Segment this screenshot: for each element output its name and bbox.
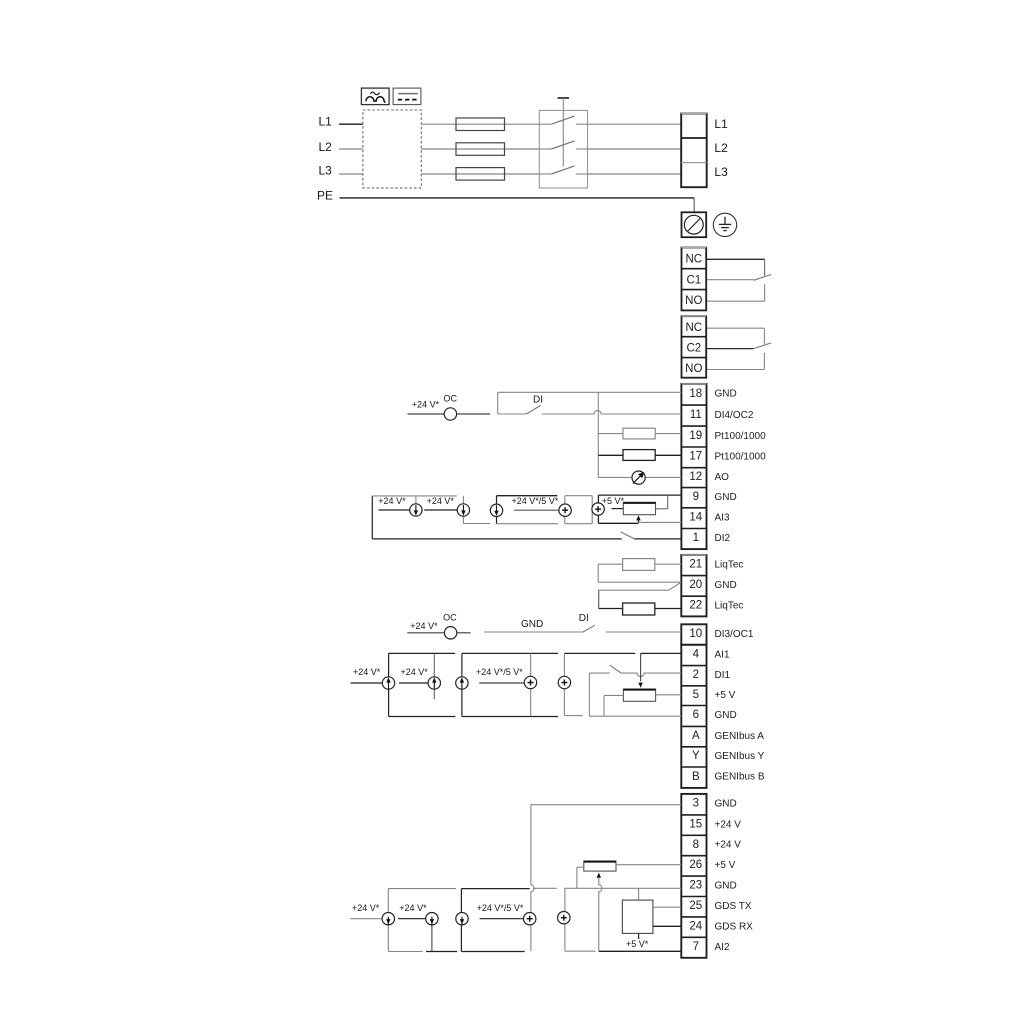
svg-text:8: 8	[693, 839, 699, 851]
svg-text:9: 9	[693, 491, 699, 503]
svg-text:+24 V*: +24 V*	[378, 496, 406, 506]
svg-text:1: 1	[693, 532, 699, 544]
svg-text:19: 19	[689, 430, 702, 442]
svg-text:+24 V: +24 V	[715, 819, 742, 830]
svg-text:18: 18	[689, 388, 702, 400]
svg-text:B: B	[692, 771, 700, 783]
svg-text:23: 23	[689, 880, 702, 892]
svg-text:DI: DI	[579, 613, 589, 624]
svg-text:+24 V*: +24 V*	[353, 667, 381, 677]
svg-text:7: 7	[693, 941, 699, 953]
svg-text:22: 22	[689, 600, 702, 612]
svg-text:11: 11	[690, 409, 702, 421]
svg-text:+5 V*: +5 V*	[626, 939, 649, 949]
svg-text:DI1: DI1	[715, 670, 731, 681]
svg-text:GDS RX: GDS RX	[715, 921, 754, 932]
svg-text:AO: AO	[715, 472, 730, 483]
svg-text:Y: Y	[692, 750, 700, 762]
svg-text:C2: C2	[686, 343, 701, 355]
svg-text:L3: L3	[319, 164, 333, 178]
svg-text:10: 10	[689, 628, 702, 640]
svg-text:+24 V*: +24 V*	[427, 496, 455, 506]
svg-text:+24 V: +24 V	[715, 840, 742, 851]
svg-text:5: 5	[693, 689, 699, 701]
svg-text:L1: L1	[714, 117, 728, 131]
svg-text:14: 14	[689, 511, 702, 523]
svg-text:15: 15	[689, 818, 702, 830]
svg-text:3: 3	[693, 798, 699, 810]
svg-text:GND: GND	[715, 580, 737, 591]
svg-text:24: 24	[689, 920, 702, 932]
svg-text:+24 V*/5 V*: +24 V*/5 V*	[477, 903, 524, 913]
svg-text:+5 V: +5 V	[715, 690, 736, 701]
svg-text:L3: L3	[714, 165, 728, 179]
svg-text:NO: NO	[685, 295, 702, 307]
svg-text:DI: DI	[533, 395, 543, 406]
svg-text:LiqTec: LiqTec	[715, 560, 744, 571]
svg-text:+24 V*: +24 V*	[352, 903, 380, 913]
svg-text:NO: NO	[685, 363, 702, 375]
svg-text:OC: OC	[444, 394, 458, 404]
svg-text:GENIbus Y: GENIbus Y	[715, 751, 765, 762]
svg-text:4: 4	[693, 649, 700, 661]
svg-text:20: 20	[689, 579, 702, 591]
svg-text:GND: GND	[715, 492, 737, 503]
svg-text:17: 17	[689, 451, 702, 463]
svg-text:Pt100/1000: Pt100/1000	[715, 452, 767, 463]
svg-text:GND: GND	[521, 619, 543, 630]
svg-text:+24 V*: +24 V*	[410, 621, 438, 631]
svg-text:+24 V*/5 V*: +24 V*/5 V*	[476, 667, 523, 677]
svg-text:NC: NC	[685, 322, 702, 334]
svg-text:DI4/OC2: DI4/OC2	[715, 410, 754, 421]
svg-text:AI1: AI1	[715, 649, 730, 660]
svg-text:NC: NC	[685, 253, 702, 265]
svg-text:AI2: AI2	[715, 942, 730, 953]
svg-text:Pt100/1000: Pt100/1000	[715, 431, 767, 442]
svg-text:26: 26	[689, 859, 702, 871]
svg-text:+5 V*: +5 V*	[602, 496, 625, 506]
svg-text:2: 2	[693, 669, 699, 681]
svg-text:GND: GND	[715, 389, 737, 400]
svg-text:+24 V*: +24 V*	[412, 400, 440, 410]
svg-text:12: 12	[689, 471, 702, 483]
svg-text:25: 25	[689, 900, 702, 912]
svg-text:LiqTec: LiqTec	[715, 601, 744, 612]
svg-text:GND: GND	[715, 799, 737, 810]
svg-text:DI2: DI2	[715, 533, 731, 544]
svg-text:GND: GND	[715, 710, 737, 721]
svg-text:21: 21	[689, 559, 702, 571]
svg-text:+24 V*/5 V*: +24 V*/5 V*	[512, 496, 559, 506]
svg-text:GENIbus A: GENIbus A	[715, 731, 765, 742]
svg-text:PE: PE	[317, 189, 333, 203]
svg-text:GDS TX: GDS TX	[715, 901, 752, 912]
svg-text:OC: OC	[443, 613, 457, 623]
svg-text:L2: L2	[714, 141, 728, 155]
svg-text:GND: GND	[715, 881, 737, 892]
svg-text:L2: L2	[319, 140, 333, 154]
svg-text:6: 6	[693, 709, 699, 721]
svg-text:C1: C1	[686, 274, 701, 286]
svg-text:DI3/OC1: DI3/OC1	[715, 629, 754, 640]
svg-text:L1: L1	[319, 115, 333, 129]
svg-text:+24 V*: +24 V*	[399, 903, 427, 913]
svg-text:GENIbus B: GENIbus B	[715, 772, 765, 783]
svg-text:+5 V: +5 V	[715, 860, 736, 871]
svg-text:A: A	[692, 730, 700, 742]
svg-text:AI3: AI3	[715, 512, 730, 523]
svg-text:+24 V*: +24 V*	[401, 667, 429, 677]
